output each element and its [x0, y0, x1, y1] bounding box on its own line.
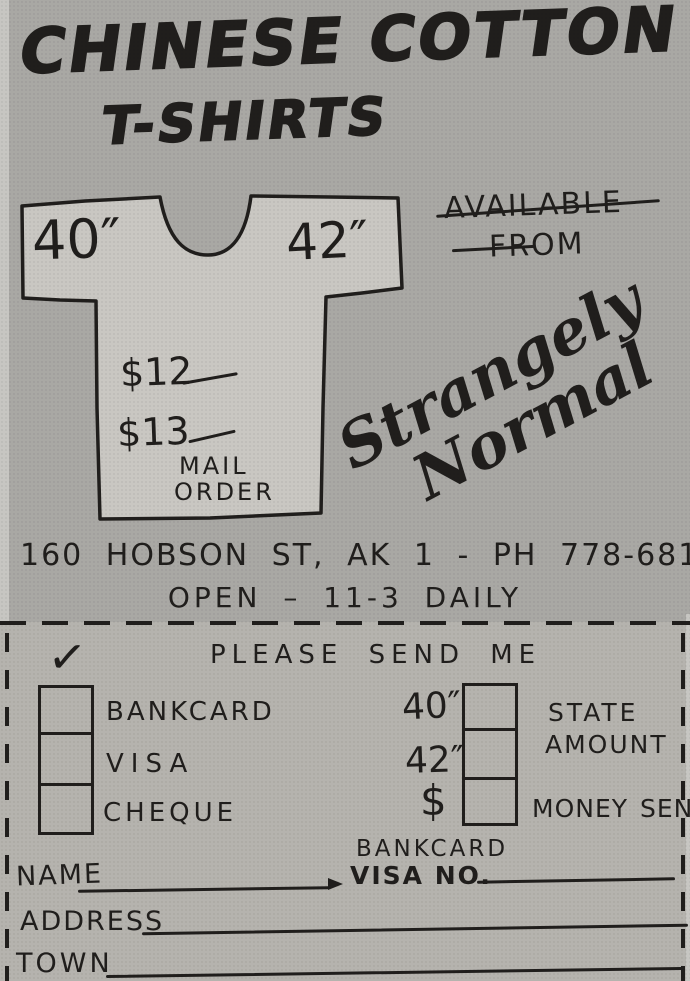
card-number-label-line2: VISA NO. — [350, 861, 492, 890]
shirt-size-right-label: 42″ — [285, 210, 370, 272]
cheque-option-label: CHEQUE — [103, 798, 237, 828]
visa-option-label: VISA — [106, 749, 194, 779]
town-field-label: TOWN — [16, 948, 113, 979]
size-40-checkbox[interactable] — [462, 683, 518, 731]
coupon-border-top — [0, 621, 690, 625]
cheque-checkbox[interactable] — [38, 783, 94, 835]
headline-line1: CHINESE COTTON — [15, 0, 669, 88]
name-field-label: NAME — [15, 858, 103, 892]
mail-order-note-line1: MAIL — [179, 452, 249, 480]
visa-checkbox[interactable] — [38, 732, 94, 786]
opening-hours: OPEN – 11-3 DAILY — [25, 581, 665, 614]
size-42-checkbox[interactable] — [462, 728, 518, 780]
arrow-right-icon — [328, 878, 343, 890]
mail-order-note-line2: ORDER — [174, 478, 275, 506]
state-amount-hint-line1: STATE — [548, 698, 638, 727]
coupon-heading: PLEASE SEND ME — [210, 640, 541, 670]
dollar-sign-label: $ — [420, 776, 447, 825]
money-sent-label: MONEY SENT — [532, 794, 690, 823]
flyer-page: CHINESE COTTON T-SHIRTS 40″ 42″ $12 $13 … — [0, 0, 690, 981]
bankcard-option-label: BANKCARD — [106, 697, 275, 727]
store-address: 160 HOBSON ST, AK 1 - PH 778-681 — [20, 538, 675, 573]
checkmark-icon: ✓ — [45, 628, 89, 686]
state-amount-hint-line2: AMOUNT — [545, 730, 668, 759]
amount-checkbox[interactable] — [462, 777, 518, 826]
shirt-size-left-label: 40″ — [31, 206, 122, 272]
price-mailorder-label: $13 — [116, 409, 190, 456]
headline-line2: T-SHIRTS — [55, 86, 436, 159]
coupon-border-left — [5, 633, 9, 981]
card-number-label-line1: BANKCARD — [356, 836, 508, 862]
price-shop-label: $12 — [119, 349, 193, 396]
size-40-label: 40″ — [401, 684, 462, 728]
bankcard-checkbox[interactable] — [38, 685, 94, 735]
